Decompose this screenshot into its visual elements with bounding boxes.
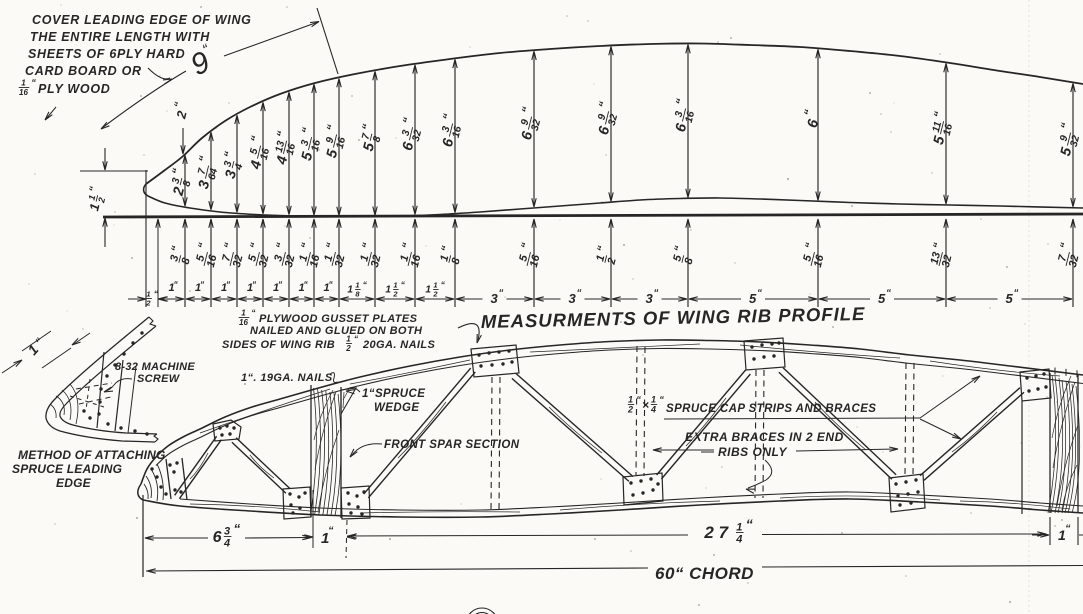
svg-text:1“SPRUCE: 1“SPRUCE (362, 388, 425, 400)
svg-text:5: 5 (878, 291, 886, 306)
svg-text:“: “ (154, 289, 159, 299)
svg-text:1: 1 (346, 335, 351, 344)
svg-text:“: “ (886, 288, 891, 299)
svg-text:THE ENTIRE LENGTH WITH: THE ENTIRE LENGTH WITH (30, 30, 210, 44)
svg-text:20GA. NAILS: 20GA. NAILS (362, 339, 436, 351)
svg-text:“: “ (251, 308, 256, 318)
svg-text:8-32 MACHINE: 8-32 MACHINE (115, 361, 195, 373)
svg-text:“: “ (441, 280, 446, 290)
svg-text:2: 2 (392, 289, 398, 298)
svg-text:16: 16 (19, 88, 28, 97)
svg-text:1: 1 (355, 281, 359, 290)
svg-text:“: “ (31, 77, 36, 87)
svg-text:3: 3 (646, 291, 654, 306)
svg-text:“: “ (654, 288, 659, 299)
svg-text:EXTRA BRACES IN 2 END: EXTRA BRACES IN 2 END (685, 430, 844, 444)
svg-text:1: 1 (425, 285, 431, 296)
svg-text:SPRUCE CAP STRIPS AND BRACES: SPRUCE CAP STRIPS AND BRACES (666, 403, 876, 415)
svg-text:1: 1 (736, 522, 742, 534)
svg-text:SHEETS OF 6PLY HARD: SHEETS OF 6PLY HARD (28, 47, 185, 61)
svg-text:2: 2 (627, 405, 633, 415)
svg-text:6: 6 (213, 529, 222, 546)
svg-text:1: 1 (21, 79, 26, 88)
svg-text:CARD BOARD OR: CARD BOARD OR (25, 64, 142, 78)
svg-text:“: “ (577, 288, 582, 299)
svg-text:“: “ (252, 279, 257, 289)
svg-text:1: 1 (433, 281, 437, 290)
svg-text:“: “ (200, 279, 205, 289)
svg-text:WEDGE: WEDGE (374, 402, 419, 414)
svg-text:“: “ (233, 522, 240, 537)
svg-text:1“. 19GA. NAILS: 1“. 19GA. NAILS (241, 372, 333, 384)
svg-text:“: “ (636, 394, 641, 404)
svg-text:“: “ (746, 518, 754, 534)
svg-text:“: “ (329, 279, 334, 289)
svg-text:SIDES OF WING RIB: SIDES OF WING RIB (222, 339, 335, 351)
svg-text:4: 4 (650, 405, 656, 415)
svg-text:“: “ (363, 280, 368, 290)
svg-text:“: “ (1065, 523, 1071, 535)
svg-text:4: 4 (223, 537, 230, 549)
svg-text:1: 1 (146, 290, 150, 299)
svg-text:“: “ (174, 279, 179, 289)
svg-text:1: 1 (347, 285, 353, 296)
svg-text:SCREW: SCREW (137, 373, 181, 385)
svg-text:“: “ (304, 279, 309, 289)
svg-text:“: “ (401, 280, 406, 290)
svg-text:SPRUCE LEADING: SPRUCE LEADING (12, 462, 122, 476)
svg-text:PLYWOOD GUSSET PLATES: PLYWOOD GUSSET PLATES (259, 313, 418, 325)
svg-text:COVER LEADING EDGE OF WING: COVER LEADING EDGE OF WING (32, 13, 252, 27)
svg-text:3: 3 (569, 291, 577, 306)
svg-text:60“ CHORD: 60“ CHORD (655, 564, 754, 583)
svg-text:“: “ (328, 525, 334, 537)
svg-text:4: 4 (735, 533, 742, 545)
svg-text:FRONT SPAR SECTION: FRONT SPAR SECTION (384, 439, 520, 451)
svg-text:2: 2 (145, 298, 151, 307)
svg-text:“: “ (659, 394, 664, 404)
svg-text:“: “ (278, 279, 283, 289)
svg-text:EDGE: EDGE (56, 476, 92, 490)
svg-text:3: 3 (491, 291, 499, 306)
svg-text:1: 1 (628, 395, 633, 405)
svg-text:RIBS ONLY: RIBS ONLY (718, 445, 787, 459)
svg-text:2: 2 (432, 289, 438, 298)
svg-text:2 7: 2 7 (703, 523, 729, 542)
svg-text:1: 1 (651, 395, 656, 405)
svg-text:“: “ (757, 288, 762, 299)
svg-text:“: “ (499, 288, 504, 299)
svg-text:1: 1 (385, 285, 391, 296)
svg-text:“: “ (354, 334, 359, 344)
svg-text:“: “ (1014, 288, 1019, 299)
svg-text:×: × (642, 398, 649, 412)
svg-text:5: 5 (749, 291, 757, 306)
svg-text:NAILED AND GLUED ON BOTH: NAILED AND GLUED ON BOTH (250, 325, 423, 337)
svg-text:5: 5 (1006, 291, 1014, 306)
svg-text:1: 1 (393, 281, 397, 290)
svg-text:METHOD OF ATTACHING: METHOD OF ATTACHING (18, 448, 166, 462)
svg-text:16: 16 (239, 318, 248, 327)
svg-text:“: “ (226, 279, 231, 289)
svg-text:3: 3 (224, 526, 230, 538)
svg-text:PLY WOOD: PLY WOOD (38, 82, 111, 96)
svg-text:2: 2 (345, 344, 351, 353)
svg-text:1: 1 (241, 309, 246, 318)
